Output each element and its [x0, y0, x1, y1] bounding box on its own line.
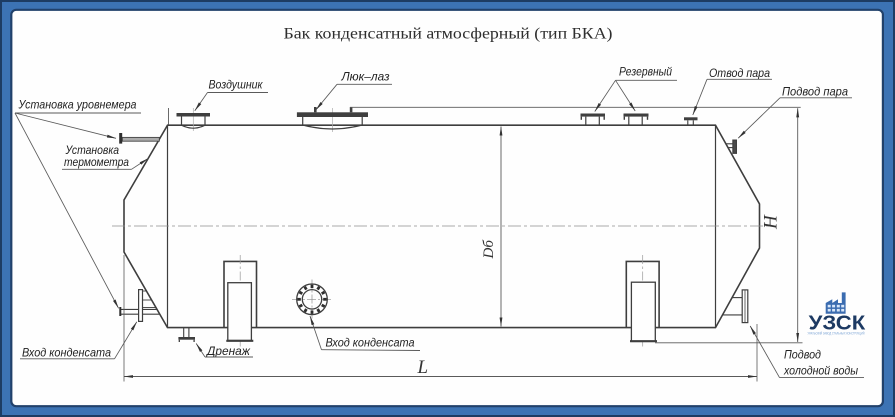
svg-text:Установка уровнемера: Установка уровнемера [18, 98, 137, 112]
svg-text:Dб: Dб [481, 240, 497, 260]
svg-text:Отвод пара: Отвод пара [709, 66, 770, 80]
svg-text:Дренаж: Дренаж [205, 344, 251, 358]
svg-text:Воздушник: Воздушник [209, 78, 263, 92]
svg-text:УРАЛЬСКИЙ ЗАВОД СТАЛЬНЫХ КОНСТ: УРАЛЬСКИЙ ЗАВОД СТАЛЬНЫХ КОНСТРУКЦИЙ [808, 331, 866, 335]
svg-text:Бак конденсатный атмосферный (: Бак конденсатный атмосферный (тип БКА) [284, 26, 613, 43]
svg-text:термометра: термометра [64, 155, 129, 169]
svg-text:Подвод пара: Подвод пара [782, 85, 848, 99]
svg-text:L: L [417, 357, 429, 378]
svg-text:H: H [761, 214, 782, 230]
svg-text:Подвод: Подвод [784, 348, 821, 362]
svg-text:Люк–лаз: Люк–лаз [340, 70, 390, 84]
svg-text:Вход конденсата: Вход конденсата [22, 346, 111, 360]
svg-text:Вход конденсата: Вход конденсата [326, 336, 415, 350]
svg-text:Резервный: Резервный [619, 65, 672, 79]
svg-text:холодной воды: холодной воды [783, 364, 858, 378]
